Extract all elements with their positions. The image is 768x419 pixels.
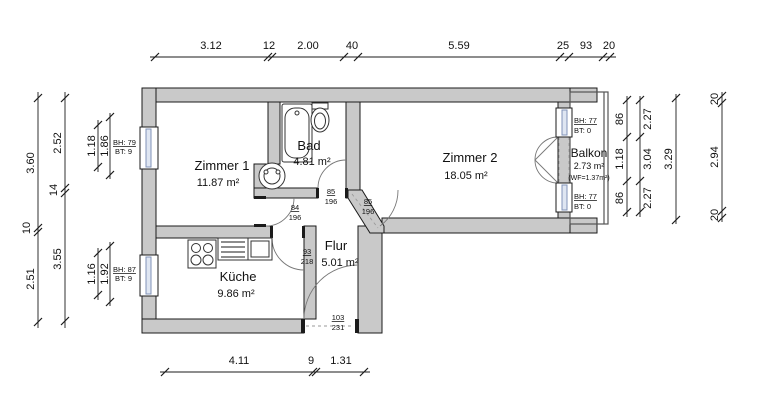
wall-top bbox=[142, 88, 597, 102]
dim-top-7: 93 bbox=[580, 40, 592, 52]
bad-sink-tap-right bbox=[276, 170, 280, 174]
zimmer1-label: Zimmer 1 bbox=[195, 158, 250, 173]
dim-left-14: 14 bbox=[48, 184, 60, 196]
wall-bottom-kitchen bbox=[142, 319, 304, 333]
dim-left-10: 10 bbox=[21, 222, 33, 234]
dimension-chains-left: 3.60 10 2.51 2.52 14 3.55 1.18 1.86 1.16… bbox=[21, 92, 114, 328]
kueche-door-width: 93 bbox=[303, 247, 311, 256]
kueche-area: 9.86 m² bbox=[217, 288, 255, 300]
entrance-door-jamb-left bbox=[301, 319, 305, 333]
dim-right-227b: 2.27 bbox=[642, 187, 654, 208]
bad-label: Bad bbox=[297, 138, 320, 153]
flur-label: Flur bbox=[325, 238, 348, 253]
bad-door-jamb-left bbox=[316, 188, 319, 198]
dim-top-5: 5.59 bbox=[448, 40, 469, 52]
stove-burner-2 bbox=[204, 244, 213, 253]
wall-bad-right bbox=[346, 102, 360, 198]
wall-bottom-zimmer2 bbox=[382, 218, 597, 233]
zimmer2-door-height: 196 bbox=[362, 207, 375, 216]
dim-window1-118: 1.18 bbox=[86, 135, 98, 156]
bad-door-jamb-right bbox=[345, 188, 348, 198]
dim-left-251: 2.51 bbox=[25, 268, 37, 289]
dim-top-4: 40 bbox=[346, 40, 358, 52]
dim-right-86b: 86 bbox=[614, 192, 626, 204]
dim-top-1: 3.12 bbox=[200, 40, 221, 52]
wall-balkon-stub-bottom bbox=[570, 218, 597, 233]
bad-door-height: 196 bbox=[325, 197, 338, 206]
dimension-chain-bottom: 4.11 9 1.31 bbox=[160, 355, 370, 376]
dim-right-329: 3.29 bbox=[663, 148, 675, 169]
kueche-label: Küche bbox=[220, 269, 257, 284]
wall-bad-left-upper bbox=[268, 102, 280, 164]
dim-top-8: 20 bbox=[603, 40, 615, 52]
balkon-window-top-bh: BH: 77 bbox=[574, 116, 597, 125]
zimmer1-window-bt: BT: 9 bbox=[115, 147, 132, 156]
dim-top-3: 2.00 bbox=[297, 40, 318, 52]
kitchen-sink-basin bbox=[251, 241, 269, 257]
balkon-window-top-bt: BT: 0 bbox=[574, 126, 591, 135]
bad-door-width: 85 bbox=[327, 187, 335, 196]
kueche-door-height: 218 bbox=[301, 257, 314, 266]
kueche-window-bh: BH: 87 bbox=[113, 265, 136, 274]
zimmer2-door-width: 85 bbox=[364, 197, 372, 206]
dim-bottom-2: 9 bbox=[308, 355, 314, 367]
dim-right-304: 3.04 bbox=[642, 148, 654, 169]
kueche-door-jamb-left bbox=[270, 226, 273, 238]
kueche-window-bt: BT: 9 bbox=[115, 274, 132, 283]
dim-right-20b: 20 bbox=[709, 209, 721, 221]
dim-right-20a: 20 bbox=[709, 93, 721, 105]
dim-window1-186: 1.86 bbox=[99, 135, 111, 156]
zimmer1-door-height: 196 bbox=[289, 213, 302, 222]
kueche-door-arc bbox=[272, 238, 304, 270]
entrance-door-jamb-right bbox=[355, 319, 359, 333]
dimension-chains-right: 86 1.18 86 2.27 3.04 2.27 3.29 20 2.94 2… bbox=[614, 92, 726, 224]
dimension-chain-top: 3.12 12 2.00 40 5.59 25 93 20 bbox=[150, 40, 616, 61]
dim-left-252: 2.52 bbox=[52, 132, 64, 153]
bad-sink-tap-left bbox=[264, 170, 268, 174]
entrance-door-width: 103 bbox=[332, 313, 345, 322]
zimmer1-area: 11.87 m² bbox=[197, 177, 240, 189]
zimmer1-door-jamb-bottom bbox=[254, 224, 266, 227]
kueche-door-jamb-right bbox=[302, 226, 305, 238]
dim-right-227a: 2.27 bbox=[642, 108, 654, 129]
stove-burner-1 bbox=[192, 244, 201, 253]
zimmer1-window-bh: BH: 79 bbox=[113, 138, 136, 147]
zimmer1-window-glazing bbox=[146, 129, 151, 167]
dim-top-6: 25 bbox=[557, 40, 569, 52]
bad-area: 4.81 m² bbox=[293, 156, 331, 168]
floor-plan-page: Zimmer 1 11.87 m² Bad 4.81 m² Zimmer 2 1… bbox=[0, 0, 768, 419]
wall-zimmer1-kueche bbox=[156, 226, 272, 238]
balkon-window-top-glazing bbox=[562, 110, 567, 135]
dim-right-294: 2.94 bbox=[709, 146, 721, 167]
zimmer2-area: 18.05 m² bbox=[444, 170, 488, 182]
balkon-window-bottom-bt: BT: 0 bbox=[574, 202, 591, 211]
dim-bottom-1: 4.11 bbox=[229, 355, 250, 367]
dim-window2-192: 1.92 bbox=[99, 263, 111, 284]
balkon-window-bottom-glazing bbox=[562, 185, 567, 210]
zimmer1-door-width: 84 bbox=[291, 203, 299, 212]
entrance-door-height: 231 bbox=[332, 323, 345, 332]
dim-left-360: 3.60 bbox=[25, 152, 37, 173]
zimmer1-door-jamb-top bbox=[254, 196, 266, 199]
dim-left-355: 3.55 bbox=[52, 248, 64, 269]
wall-flur-right bbox=[358, 226, 382, 333]
flur-area: 5.01 m² bbox=[321, 257, 359, 269]
dim-window2-116: 1.16 bbox=[86, 263, 98, 284]
stove-burner-4 bbox=[203, 255, 213, 265]
balkon-area: 2.73 m² bbox=[574, 161, 605, 171]
wall-balkon-stub-top bbox=[570, 88, 597, 102]
dim-right-118: 1.18 bbox=[614, 148, 626, 169]
balkon-note: (WF=1.37m²) bbox=[568, 175, 609, 182]
toilet-bowl bbox=[315, 113, 326, 129]
kueche-window-glazing bbox=[146, 257, 151, 294]
zimmer2-label: Zimmer 2 bbox=[443, 150, 498, 165]
dim-right-86a: 86 bbox=[614, 113, 626, 125]
stove-burner-3 bbox=[191, 255, 201, 265]
balkon-window-bottom-bh: BH: 77 bbox=[574, 192, 597, 201]
floor-plan-canvas: Zimmer 1 11.87 m² Bad 4.81 m² Zimmer 2 1… bbox=[0, 0, 768, 419]
dim-bottom-3: 1.31 bbox=[330, 355, 351, 367]
balkon-label: Balkon bbox=[571, 146, 608, 160]
bathtub-drain bbox=[295, 111, 299, 115]
dim-top-2: 12 bbox=[263, 40, 275, 52]
